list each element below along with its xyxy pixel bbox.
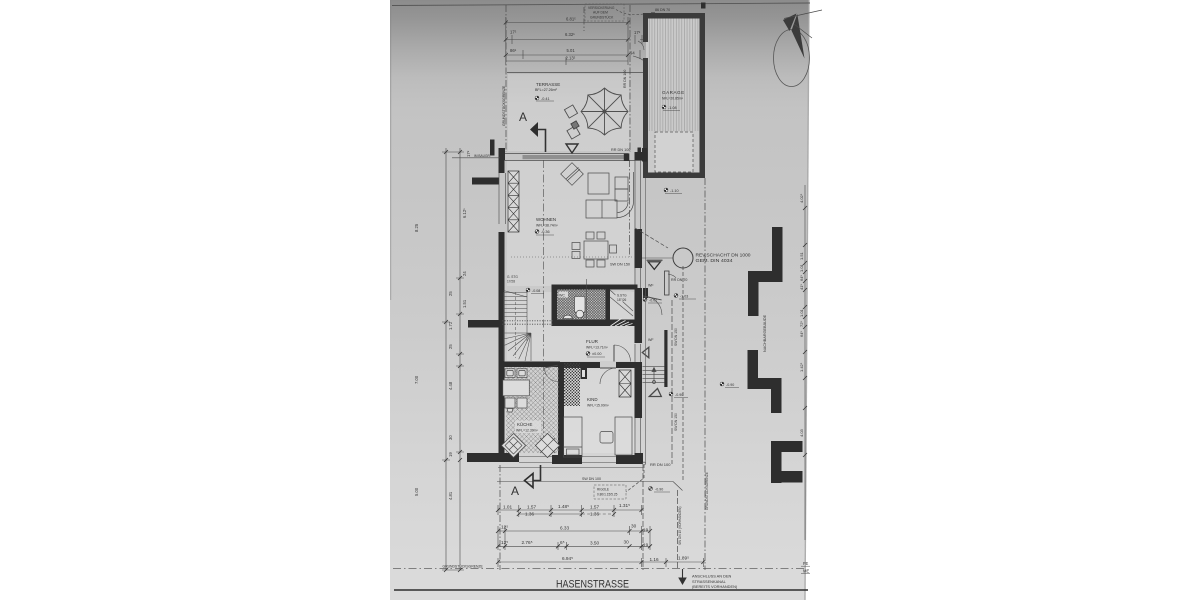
svg-text:WC: WC xyxy=(559,294,565,298)
svg-text:WF: WF xyxy=(648,284,654,288)
svg-text:1.72: 1.72 xyxy=(448,321,453,330)
svg-text:19: 19 xyxy=(448,452,453,457)
svg-text:-0.02: -0.02 xyxy=(649,299,657,303)
svg-text:KIND: KIND xyxy=(587,397,598,402)
svg-text:AUF DEM: AUF DEM xyxy=(593,11,608,15)
svg-text:17/28: 17/28 xyxy=(507,280,515,284)
svg-text:2.13⁵: 2.13⁵ xyxy=(566,56,576,61)
svg-text:17⁵: 17⁵ xyxy=(510,30,517,35)
svg-text:GRUNDSTÜCK: GRUNDSTÜCK xyxy=(590,16,614,20)
svg-text:SW DN 150: SW DN 150 xyxy=(674,413,678,431)
svg-text:GEM. DIN 4034: GEM. DIN 4034 xyxy=(696,258,734,263)
svg-text:30: 30 xyxy=(624,540,630,545)
svg-text:WFL=13.71m²: WFL=13.71m² xyxy=(586,346,608,350)
svg-text:12⁵: 12⁵ xyxy=(501,540,508,545)
svg-text:RR DN 100: RR DN 100 xyxy=(650,462,671,467)
svg-text:64⁵: 64⁵ xyxy=(799,331,804,337)
svg-text:KÜCHE: KÜCHE xyxy=(517,422,532,427)
svg-text:1.16: 1.16 xyxy=(650,557,660,562)
svg-text:6.94⁵: 6.94⁵ xyxy=(562,556,573,561)
svg-text:RIGOLE: RIGOLE xyxy=(597,488,609,492)
svg-text:6.32⁵: 6.32⁵ xyxy=(565,32,575,37)
svg-text:GRUNDSTÜCKSGRENZE: GRUNDSTÜCKSGRENZE xyxy=(502,85,506,126)
svg-text:25: 25 xyxy=(448,344,453,349)
svg-text:86⁵: 86⁵ xyxy=(510,48,517,53)
svg-text:1.42⁵: 1.42⁵ xyxy=(799,362,804,372)
svg-text:S.STG: S.STG xyxy=(617,294,627,298)
svg-text:NACHBARGEBÄUDE: NACHBARGEBÄUDE xyxy=(763,314,767,352)
svg-text:6.12⁵: 6.12⁵ xyxy=(462,208,467,218)
svg-text:41⁵: 41⁵ xyxy=(799,284,804,290)
svg-text:A: A xyxy=(519,110,527,124)
svg-text:-1.08: -1.08 xyxy=(668,106,677,110)
svg-text:RR DN 70: RR DN 70 xyxy=(671,278,687,282)
svg-text:WOHNEN: WOHNEN xyxy=(536,217,556,222)
svg-text:GRUNDSTÜCKSGRENZE: GRUNDSTÜCKSGRENZE xyxy=(705,472,709,510)
svg-text:5.01: 5.01 xyxy=(567,48,576,53)
svg-text:1.57: 1.57 xyxy=(527,505,537,510)
svg-text:-0.90: -0.90 xyxy=(675,393,683,397)
svg-text:18°/26: 18°/26 xyxy=(617,298,626,302)
svg-text:30: 30 xyxy=(631,524,637,529)
svg-text:1.51: 1.51 xyxy=(799,251,804,260)
svg-text:7.00: 7.00 xyxy=(414,375,419,384)
svg-text:6.33: 6.33 xyxy=(560,526,570,531)
svg-text:TERRASSE: TERRASSE xyxy=(536,82,560,87)
svg-text:±0.00: ±0.00 xyxy=(592,352,601,356)
svg-text:19: 19 xyxy=(643,543,649,548)
svg-text:A: A xyxy=(511,484,519,498)
svg-text:G. STG: G. STG xyxy=(507,275,518,279)
svg-text:-0.41: -0.41 xyxy=(541,97,550,101)
svg-text:1.36: 1.36 xyxy=(525,512,535,517)
svg-text:1.31⁵: 1.31⁵ xyxy=(619,503,630,508)
svg-text:1.01: 1.01 xyxy=(799,263,804,272)
svg-text:-0.36: -0.36 xyxy=(541,230,550,234)
svg-text:12⁵: 12⁵ xyxy=(501,525,508,530)
svg-text:4.48: 4.48 xyxy=(448,381,453,390)
svg-text:17⁸: 17⁸ xyxy=(466,150,471,157)
svg-text:1.57: 1.57 xyxy=(590,505,600,510)
svg-text:NFL=20.85m²: NFL=20.85m² xyxy=(662,97,684,101)
svg-text:SW DN 150: SW DN 150 xyxy=(674,328,678,346)
svg-text:FLUR: FLUR xyxy=(586,339,599,344)
svg-text:2.76⁵: 2.76⁵ xyxy=(522,540,533,545)
svg-text:VERSICKERUNG: VERSICKERUNG xyxy=(588,6,615,10)
svg-text:IM BAUGR.: IM BAUGR. xyxy=(474,154,491,158)
svg-text:WFL=38.74m²: WFL=38.74m² xyxy=(536,224,558,228)
svg-text:RR DN 100: RR DN 100 xyxy=(623,70,627,88)
svg-text:0.80/1.15/5.25: 0.80/1.15/5.25 xyxy=(597,493,618,497)
svg-text:86 DN 70: 86 DN 70 xyxy=(655,8,670,12)
svg-text:STRASSENKANAL: STRASSENKANAL xyxy=(692,579,727,584)
svg-text:3.50: 3.50 xyxy=(590,541,600,546)
svg-text:19: 19 xyxy=(643,528,649,533)
svg-text:-0.90: -0.90 xyxy=(655,488,663,492)
svg-text:WFL=12.39m²: WFL=12.39m² xyxy=(516,429,538,433)
svg-text:REV.SCHACHT DN 1000: REV.SCHACHT DN 1000 xyxy=(696,252,752,257)
svg-text:ME: ME xyxy=(803,569,809,574)
svg-text:WF: WF xyxy=(648,338,654,342)
svg-text:SW DN 15 (VORHANDEN): SW DN 15 (VORHANDEN) xyxy=(678,507,682,545)
svg-text:25: 25 xyxy=(448,291,453,296)
svg-text:1.01: 1.01 xyxy=(503,505,513,510)
svg-text:ANSCHLUSS AN DEN: ANSCHLUSS AN DEN xyxy=(692,574,732,579)
svg-text:6⁵: 6⁵ xyxy=(560,540,565,545)
svg-text:4.02⁵: 4.02⁵ xyxy=(799,193,804,203)
svg-text:5.00: 5.00 xyxy=(414,487,419,496)
svg-text:-0.90: -0.90 xyxy=(726,383,734,387)
svg-text:SW DN 150: SW DN 150 xyxy=(610,263,630,267)
svg-text:1.48⁵: 1.48⁵ xyxy=(558,504,569,509)
svg-text:GARAGE: GARAGE xyxy=(662,90,685,95)
svg-text:RR DN 100: RR DN 100 xyxy=(611,148,630,152)
svg-text:1.01: 1.01 xyxy=(799,308,804,317)
svg-text:8.25: 8.25 xyxy=(414,223,419,232)
svg-text:HASENSTRASSE: HASENSTRASSE xyxy=(556,579,629,591)
svg-text:4.81: 4.81 xyxy=(448,491,453,500)
svg-text:1.36: 1.36 xyxy=(590,512,600,517)
svg-text:24: 24 xyxy=(462,271,467,276)
svg-text:-1.03: -1.03 xyxy=(680,295,688,299)
svg-text:FE: FE xyxy=(803,561,809,566)
svg-text:SW DN 100: SW DN 100 xyxy=(582,477,601,481)
svg-text:(BEREITS VORHANDEN): (BEREITS VORHANDEN) xyxy=(692,584,738,589)
svg-text:BFL=27.26m²: BFL=27.26m² xyxy=(535,88,558,92)
svg-text:1.89⁵: 1.89⁵ xyxy=(678,556,689,561)
svg-text:4.03: 4.03 xyxy=(799,428,804,437)
svg-text:6.81⁵: 6.81⁵ xyxy=(566,17,576,22)
svg-text:WFL=15.00m²: WFL=15.00m² xyxy=(587,404,609,408)
svg-text:-0.08: -0.08 xyxy=(532,289,540,293)
svg-text:GRUNDSTÜCKSGRENZE: GRUNDSTÜCKSGRENZE xyxy=(443,564,484,568)
svg-text:64⁵: 64⁵ xyxy=(799,275,804,281)
svg-text:94: 94 xyxy=(630,51,635,56)
svg-text:17⁵: 17⁵ xyxy=(634,30,641,35)
svg-text:72⁵: 72⁵ xyxy=(799,321,804,327)
svg-text:1.51: 1.51 xyxy=(462,299,467,308)
svg-text:-1.10: -1.10 xyxy=(670,189,679,193)
svg-text:30: 30 xyxy=(448,435,453,440)
